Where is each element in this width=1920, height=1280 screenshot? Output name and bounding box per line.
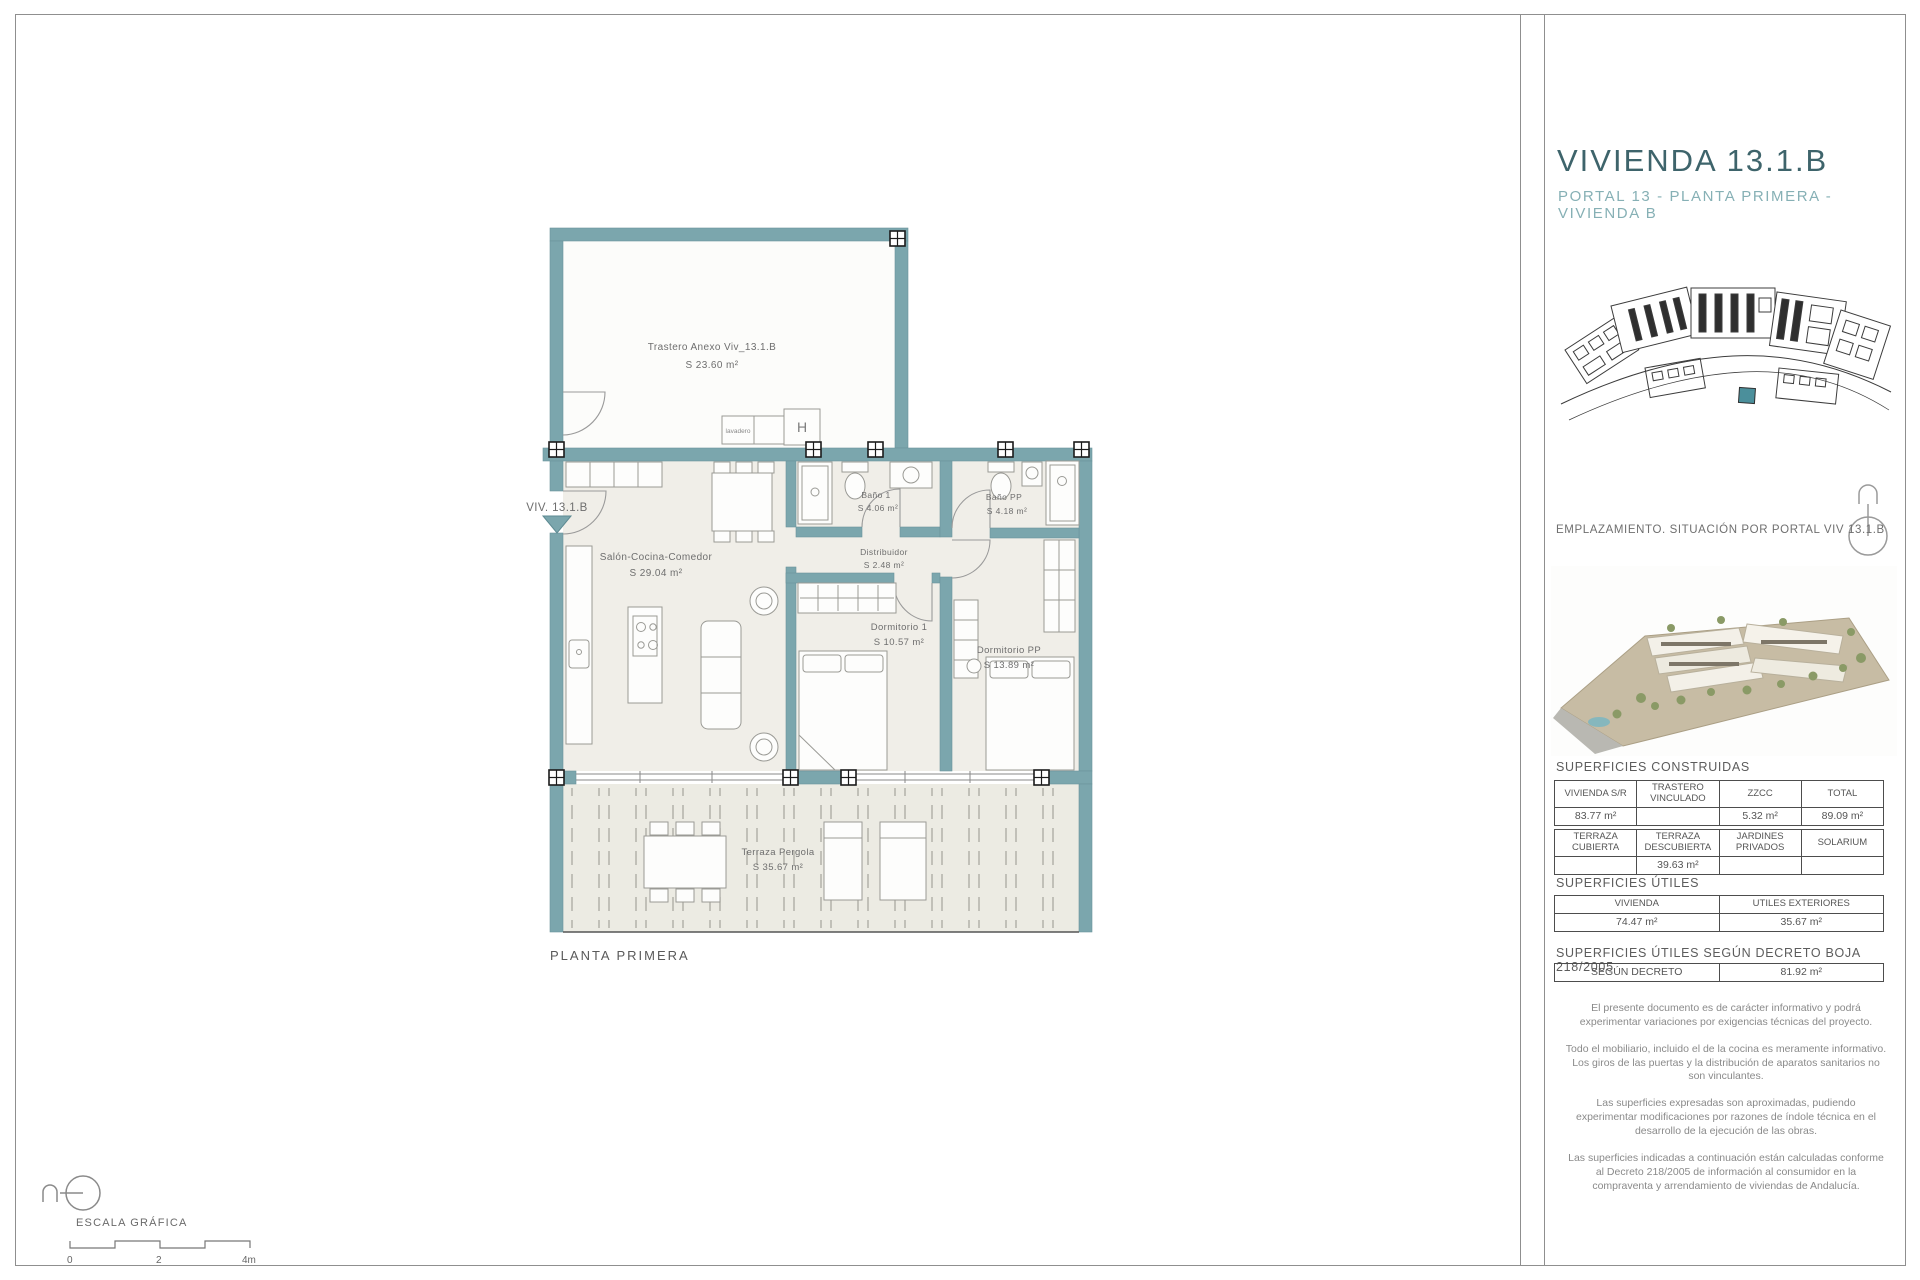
viv-entry-label: VIV. 13.1.B [526, 502, 588, 514]
t1-value-trastero [1637, 808, 1719, 826]
room-label-terraza-area: S 35.67 m² [753, 862, 803, 873]
bedroom1-bed [799, 651, 887, 770]
room-label-dorm1-area: S 10.57 m² [874, 637, 924, 648]
t2-header-terraza-cubierta: TERRAZA CUBIERTA [1555, 830, 1637, 857]
dining-table [712, 462, 774, 542]
disclaimer-1: El presente documento es de carácter inf… [1565, 1002, 1887, 1030]
room-label-banopp-area: S 4.18 m² [987, 506, 1027, 516]
terrace-table [644, 822, 726, 902]
t4-value-segun-decreto: 81.92 m² [1719, 964, 1884, 982]
disclaimer-2: Todo el mobiliario, incluido el de la co… [1565, 1043, 1887, 1085]
room-label-salon-area: S 29.04 m² [630, 568, 683, 579]
pergola-slats [566, 788, 1076, 928]
room-label-trastero-name: Trastero Anexo Viv_13.1.B [648, 342, 776, 353]
t1-header-vivienda: VIVIENDA S/R [1555, 781, 1637, 808]
t1-value-vivienda: 83.77 m² [1555, 808, 1637, 826]
disclaimer-4: Las superficies indicadas a continuación… [1565, 1152, 1887, 1194]
page-title: VIVIENDA 13.1.B [1557, 143, 1828, 179]
scale-tick-4m: 4m [242, 1255, 256, 1266]
t3-header-utiles-exteriores: UTILES EXTERIORES [1719, 896, 1884, 914]
kitchen-island [628, 607, 662, 703]
room-label-distribuidor-area: S 2.48 m² [864, 560, 904, 570]
floor-plan-drawing: lavadero H [0, 0, 1540, 1280]
t2-header-jardines: JARDINES PRIVADOS [1719, 830, 1801, 857]
room-label-banopp-name: Baño PP [986, 492, 1022, 502]
room-label-dormpp-name: Dormitorio PP [977, 645, 1041, 656]
room-label-distribuidor-name: Distribuidor [860, 547, 908, 557]
t2-header-solarium: SOLARIUM [1801, 830, 1883, 857]
page-subtitle: PORTAL 13 - PLANTA PRIMERA - VIVIENDA B [1558, 188, 1920, 222]
t2-value-solarium [1801, 857, 1883, 875]
disclaimer-3: Las superficies expresadas son aproximad… [1565, 1097, 1887, 1139]
scale-caption: ESCALA GRÁFICA [76, 1216, 188, 1229]
t1-value-total: 89.09 m² [1801, 808, 1883, 826]
room-label-bano1-name: Baño 1 [861, 490, 890, 500]
utiles-heading: SUPERFICIES ÚTILES [1556, 876, 1699, 890]
t3-header-vivienda: VIVIENDA [1555, 896, 1720, 914]
north-compass-icon [43, 1176, 100, 1210]
t1-value-zzcc: 5.32 m² [1719, 808, 1801, 826]
superficies-utiles-table: VIVIENDA UTILES EXTERIORES 74.47 m² 35.6… [1554, 895, 1884, 932]
panel-divider-inner [1544, 14, 1545, 1265]
washer-symbol: H [797, 419, 807, 435]
scale-tick-2: 2 [156, 1255, 162, 1266]
t1-header-zzcc: ZZCC [1719, 781, 1801, 808]
bedroom1-closet [798, 583, 896, 613]
t2-value-terraza-cubierta [1555, 857, 1637, 875]
room-label-dormpp-area: S 13.89 m² [984, 660, 1034, 671]
t3-value-utiles-exteriores: 35.67 m² [1719, 914, 1884, 932]
superficies-construidas-table-1: VIVIENDA S/R TRASTERO VINCULADO ZZCC TOT… [1554, 780, 1884, 826]
room-label-terraza-name: Terraza Pergola [741, 847, 814, 858]
room-label-trastero-area: S 23.60 m² [686, 360, 739, 371]
t2-value-jardines [1719, 857, 1801, 875]
t2-value-terraza-descubierta: 39.63 m² [1637, 857, 1719, 875]
room-label-dorm1-name: Dormitorio 1 [871, 622, 928, 633]
scale-bar [70, 1241, 250, 1248]
t1-header-trastero: TRASTERO VINCULADO [1637, 781, 1719, 808]
room-label-bano1-area: S 4.06 m² [858, 503, 898, 513]
disclaimer-block: El presente documento es de carácter inf… [1565, 1002, 1887, 1206]
superficies-construidas-table-2: TERRAZA CUBIERTA TERRAZA DESCUBIERTA JAR… [1554, 829, 1884, 875]
aerial-render-image [1551, 566, 1897, 756]
lavadero-label: lavadero [726, 428, 751, 435]
scale-tick-0: 0 [67, 1255, 73, 1266]
decreto-table: SEGÚN DECRETO 81.92 m² [1554, 963, 1884, 982]
t4-label-segun-decreto: SEGÚN DECRETO [1555, 964, 1720, 982]
t2-header-terraza-descubierta: TERRAZA DESCUBIERTA [1637, 830, 1719, 857]
site-plan-drawing [1553, 248, 1897, 448]
construidas-heading: SUPERFICIES CONSTRUIDAS [1556, 760, 1750, 774]
emplazamiento-caption: EMPLAZAMIENTO. SITUACIÓN POR PORTAL VIV … [1556, 524, 1885, 536]
bedroom-pp-wardrobe [1044, 540, 1075, 632]
room-label-salon-name: Salón-Cocina-Comedor [600, 552, 713, 563]
plan-sheet: lavadero H [0, 0, 1920, 1280]
plan-caption: PLANTA PRIMERA [550, 948, 690, 963]
t3-value-vivienda: 74.47 m² [1555, 914, 1720, 932]
sofa [701, 621, 741, 729]
highlighted-unit [1738, 387, 1755, 403]
t1-header-total: TOTAL [1801, 781, 1883, 808]
